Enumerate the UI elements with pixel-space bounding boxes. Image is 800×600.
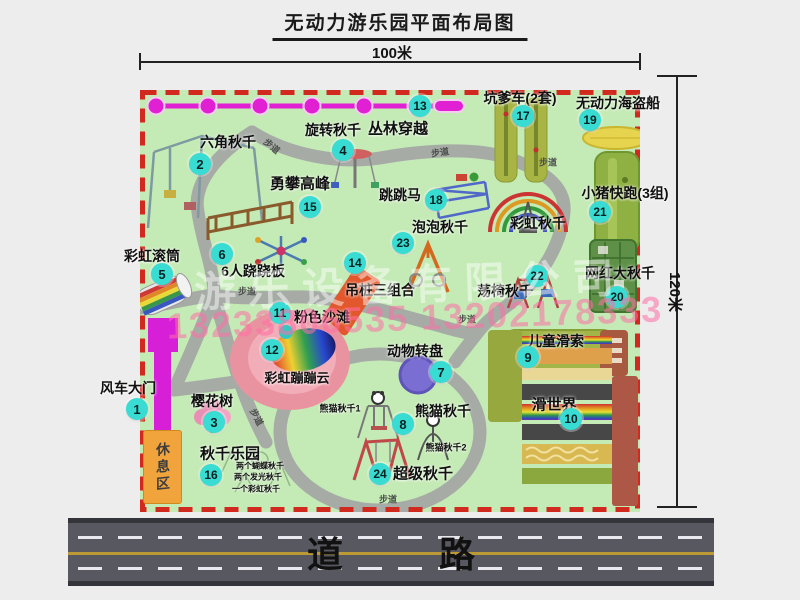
attraction-label-7: 动物转盘: [387, 341, 443, 361]
attraction-badge-7: 7: [430, 361, 452, 383]
right-dimension-label: 120米: [665, 272, 686, 312]
attraction-badge-6: 6: [211, 243, 233, 265]
annotation-label-4: 两个发光秋千: [234, 472, 282, 483]
attraction-label-14: 吊桩三组合: [345, 280, 415, 300]
attraction-badge-4: 4: [332, 139, 354, 161]
footpath-label-4: 步道: [458, 313, 476, 326]
attraction-badge-15: 15: [299, 196, 321, 218]
attraction-badge-10: 10: [560, 408, 582, 430]
road-label: 道 路: [277, 526, 505, 578]
annotation-label-0: 彩虹秋千: [510, 213, 566, 233]
annotation-label-3: 两个蝴蝶秋千: [236, 461, 284, 472]
attraction-label-6: 6人跷跷板: [221, 261, 285, 281]
panda-swing-icon: [358, 391, 398, 438]
annotation-label-1: 熊猫秋千1: [319, 402, 360, 415]
attraction-label-23: 泡泡秋千: [412, 217, 468, 237]
right-dimension-tick-bottom: [657, 506, 697, 508]
footpath-label-6: 步道: [379, 493, 397, 506]
attraction-label-18: 跳跳马: [379, 185, 421, 205]
attraction-badge-3: 3: [203, 411, 225, 433]
attraction-badge-1: 1: [126, 398, 148, 420]
attraction-badge-14: 14: [344, 252, 366, 274]
attraction-label-9: 儿童滑索: [528, 331, 584, 351]
attraction-badge-22: 22: [526, 265, 548, 287]
attraction-badge-20: 20: [606, 286, 628, 308]
attraction-badge-12: 12: [261, 339, 283, 361]
attraction-badge-17: 17: [512, 105, 534, 127]
attraction-label-11: 粉色沙滩: [294, 307, 350, 327]
attraction-badge-2: 2: [189, 153, 211, 175]
attraction-label-1: 风车大门: [100, 378, 156, 398]
attraction-badge-8: 8: [392, 413, 414, 435]
attraction-badge-13: 13: [409, 95, 431, 117]
road: 道 路: [68, 518, 714, 586]
annotation-label-2: 熊猫秋千2: [425, 441, 466, 454]
attraction-badge-9: 9: [517, 346, 539, 368]
park-layout-map: 无动力游乐园平面布局图 100米 120米: [0, 0, 800, 600]
attraction-label-22: 荡椅秋千: [477, 281, 533, 301]
attraction-label-24: 超级秋千: [393, 463, 453, 484]
attraction-label-12: 彩虹蹦蹦云: [264, 368, 329, 387]
annotation-label-5: 一个彩虹秋千: [232, 484, 280, 495]
top-dimension-tick-right: [639, 53, 641, 70]
attraction-badge-21: 21: [589, 201, 611, 223]
right-dimension-tick-top: [657, 75, 697, 77]
footpath-label-3: 步道: [238, 285, 256, 298]
top-dimension-tick-left: [139, 53, 141, 70]
attraction-badge-18: 18: [425, 189, 447, 211]
attraction-badge-5: 5: [151, 263, 173, 285]
attraction-label-20: 网红大秋千: [585, 263, 655, 283]
attraction-badge-11: 11: [269, 302, 291, 324]
attraction-label-4: 旋转秋千: [305, 120, 361, 140]
attraction-label-2: 六角秋千: [200, 132, 256, 152]
attraction-badge-19: 19: [579, 109, 601, 131]
page-title: 无动力游乐园平面布局图: [272, 8, 527, 41]
attraction-label-13: 丛林穿越: [368, 118, 428, 139]
attraction-label-21: 小猪快跑(3组): [581, 183, 668, 203]
rest-area-label: 休息区: [153, 440, 173, 493]
attraction-label-3: 樱花树: [191, 391, 233, 411]
attraction-badge-23: 23: [392, 232, 414, 254]
top-dimension-label: 100米: [372, 42, 412, 63]
attraction-label-5: 彩虹滚筒: [124, 246, 180, 266]
footpath-label-2: 步道: [539, 156, 557, 169]
attraction-label-8: 熊猫秋千: [415, 401, 471, 421]
footpath-label-1: 步道: [430, 144, 450, 159]
attraction-label-15: 勇攀高峰: [270, 173, 330, 194]
rest-area: 休息区: [143, 430, 182, 504]
climbing-peak-icon: [208, 202, 292, 240]
attraction-badge-24: 24: [369, 463, 391, 485]
attraction-badge-16: 16: [200, 464, 222, 486]
